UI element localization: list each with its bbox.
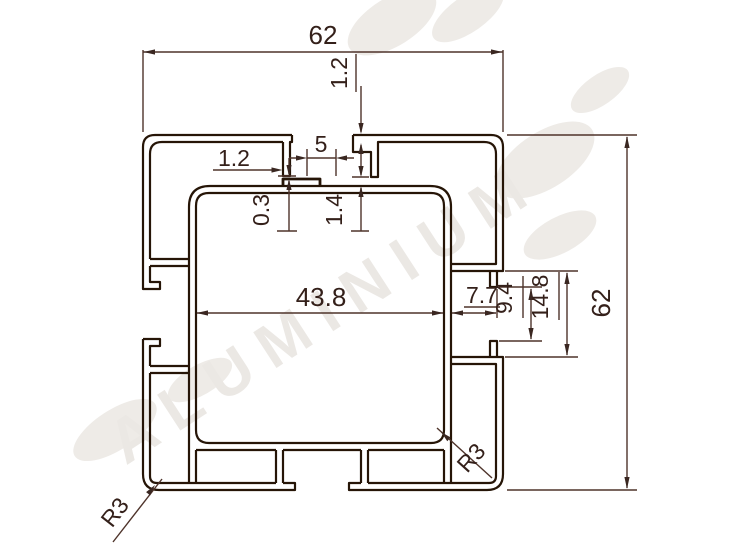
dim-top-width: 62 [309, 20, 338, 50]
dim-rib-clearance: 1.4 [321, 194, 347, 226]
dim-top-wall-thickness: 1.2 [326, 57, 352, 89]
drawing-canvas: ALUMINIUM [0, 0, 750, 560]
dim-wall-thickness-lines [356, 54, 361, 175]
watermark-blob [337, 0, 447, 69]
dim-slot-opening: 5 [315, 131, 328, 157]
watermark-blob [564, 58, 637, 122]
dim-top-width-lines [143, 50, 503, 132]
dim-notch-height: 14.8 [527, 275, 553, 320]
bottom-webs [196, 450, 444, 483]
profile-drawing: ALUMINIUM [0, 0, 750, 560]
dim-lip-clearance-lines [277, 158, 297, 231]
watermark-blob [423, 0, 512, 53]
dim-right-height: 62 [586, 289, 616, 318]
radius-label-bottom-left: R3 [95, 492, 134, 531]
dim-lip-clearance: 0.3 [248, 194, 274, 226]
dim-notch-lip-span: 9.4 [491, 282, 517, 314]
dim-lip-width: 1.2 [218, 145, 250, 171]
dim-cavity-width: 43.8 [296, 282, 347, 312]
